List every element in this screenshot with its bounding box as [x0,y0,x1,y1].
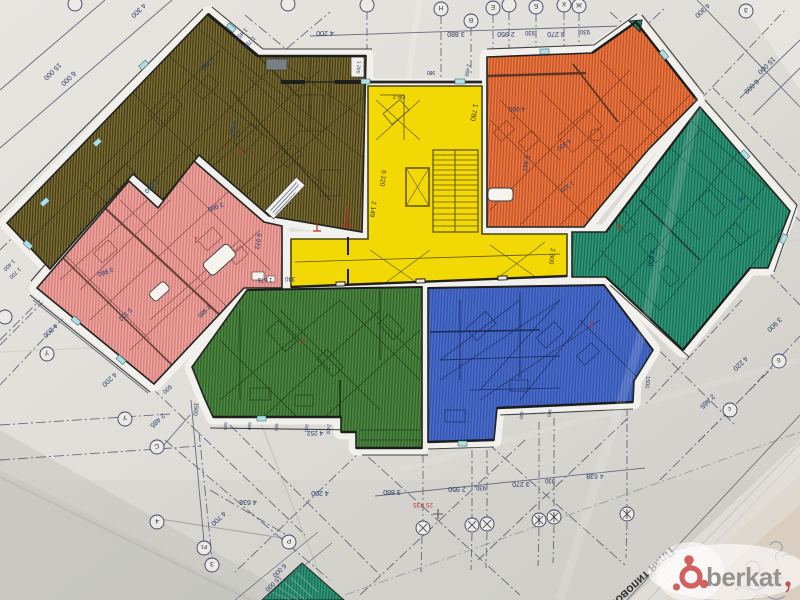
svg-text:3: 3 [589,320,594,329]
svg-text:1 676: 1 676 [257,276,273,282]
svg-text:3 270: 3 270 [512,480,530,487]
svg-text:4 638: 4 638 [239,498,257,505]
svg-text:Р1: Р1 [201,543,208,549]
svg-text:Е: Е [490,3,495,10]
svg-text:Ж: Ж [576,1,582,8]
svg-text:2 950: 2 950 [448,485,466,492]
svg-text:3 880: 3 880 [383,488,401,495]
svg-text:3 880: 3 880 [447,30,465,37]
svg-text:Р: Р [287,537,291,544]
svg-text:В: В [469,16,473,23]
svg-text:Н: Н [438,4,443,11]
svg-text:4 200: 4 200 [311,489,329,496]
svg-text:4 000: 4 000 [508,105,525,112]
svg-text:2 950: 2 950 [497,30,515,37]
svg-text:930: 930 [544,477,555,483]
svg-text:5: 5 [237,145,242,154]
svg-text:З: З [210,560,214,567]
svg-text:25 435: 25 435 [413,501,433,508]
svg-text:8: 8 [616,222,621,231]
svg-text:berkat: berkat [706,562,782,592]
svg-text:1: 1 [193,235,198,244]
svg-text:600: 600 [247,422,253,430]
svg-text:4 200: 4 200 [316,29,334,36]
svg-text:4 252: 4 252 [306,429,323,436]
svg-text:ОК-2: ОК-2 [393,93,405,99]
svg-text:900: 900 [547,409,553,417]
svg-text:4 638: 4 638 [586,472,604,479]
svg-text:З: З [744,6,748,13]
svg-text:2: 2 [300,336,305,345]
svg-text:930: 930 [475,484,486,490]
svg-text:600: 600 [519,411,525,419]
svg-text:7: 7 [511,111,516,120]
svg-text:900: 900 [274,423,280,431]
svg-text:3 270: 3 270 [547,30,565,37]
svg-text:930: 930 [579,28,590,34]
svg-text:930: 930 [524,29,535,35]
svg-text:К: К [562,0,566,7]
svg-text:Б: Б [534,2,538,9]
svg-text:600: 600 [223,422,229,430]
svg-text:340: 340 [284,275,295,281]
svg-text:1500: 1500 [643,376,650,389]
svg-text:980: 980 [427,69,436,75]
svg-text:4: 4 [155,517,159,524]
